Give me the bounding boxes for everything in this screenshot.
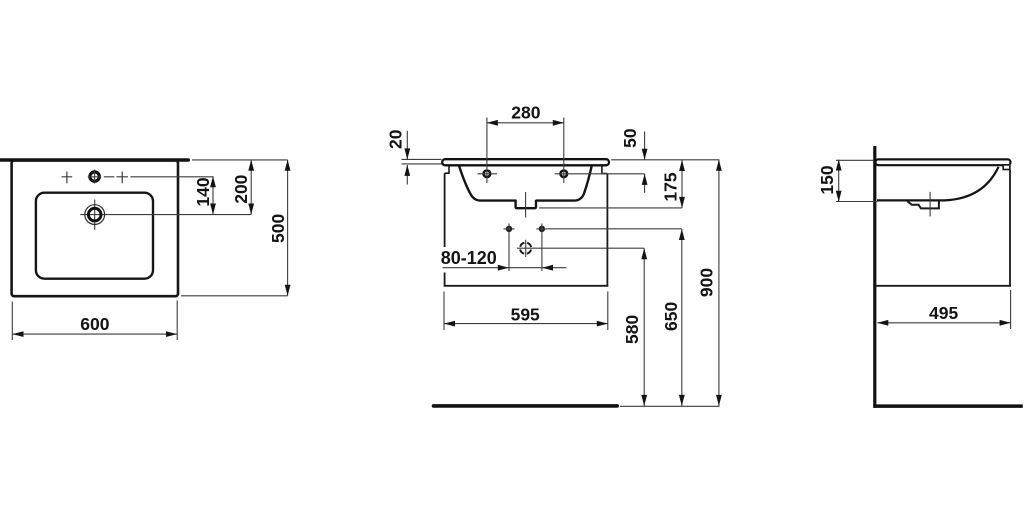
svg-text:900: 900 xyxy=(696,268,716,297)
svg-text:80-120: 80-120 xyxy=(441,248,497,268)
svg-text:200: 200 xyxy=(231,174,251,203)
svg-text:280: 280 xyxy=(511,103,540,123)
svg-text:495: 495 xyxy=(929,303,958,323)
svg-text:580: 580 xyxy=(622,315,642,344)
svg-text:50: 50 xyxy=(620,128,640,148)
svg-text:150: 150 xyxy=(817,165,837,194)
svg-text:600: 600 xyxy=(80,314,109,334)
svg-text:20: 20 xyxy=(385,129,405,149)
svg-text:140: 140 xyxy=(193,177,213,206)
svg-text:595: 595 xyxy=(511,304,540,324)
svg-text:650: 650 xyxy=(661,302,681,331)
svg-text:500: 500 xyxy=(268,214,288,243)
svg-text:175: 175 xyxy=(661,172,681,201)
